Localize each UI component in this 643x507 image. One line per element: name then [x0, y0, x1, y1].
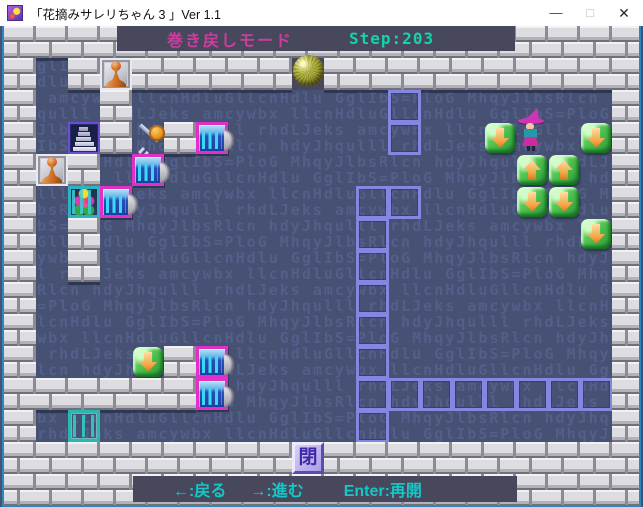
brick-wall-tile: [548, 26, 580, 58]
brick-wall-tile: [100, 378, 132, 410]
brick-wall-tile: [68, 442, 100, 474]
arrow-down-tile: [517, 187, 547, 217]
witch-torso: [524, 129, 537, 138]
status-bar: 巻き戻しモード Step:203: [117, 26, 515, 51]
brick-wall-tile: [4, 122, 36, 154]
brick-wall-tile: [484, 58, 516, 90]
down-arrow-icon: [491, 128, 509, 148]
brick-wall-tile: [612, 474, 641, 506]
brick-wall-tile: [36, 474, 68, 506]
brick-wall-tile: [68, 58, 100, 90]
down-arrow-icon: [555, 192, 573, 212]
stairs-tile: [68, 122, 100, 154]
brick-wall-tile: [612, 90, 641, 122]
brick-wall-tile: [612, 346, 641, 378]
brick-wall-tile: [4, 90, 36, 122]
open-gate-tile: [68, 410, 100, 442]
closed-gate-tile: [196, 122, 228, 154]
brick-wall-tile: [324, 58, 356, 90]
trail-marker: [356, 250, 389, 283]
brick-wall-tile: [4, 186, 36, 218]
pawn-figure: [42, 157, 62, 183]
brick-wall-tile: [132, 442, 164, 474]
trail-marker: [388, 90, 421, 123]
down-arrow-icon: [587, 128, 605, 148]
brick-wall-tile: [388, 58, 420, 90]
witch-legr: [532, 146, 535, 151]
brick-wall-tile: [612, 218, 641, 250]
flower-cage-tile: [68, 186, 100, 218]
key-item: [132, 122, 164, 154]
brick-wall-tile: [4, 282, 36, 314]
brick-wall-tile: [164, 346, 196, 378]
brick-wall-tile: [132, 58, 164, 90]
game-board[interactable]: hdyJhqulll rhdLJeks amcywbx llcnHdluGllc…: [2, 26, 641, 507]
brick-wall-tile: [4, 378, 36, 410]
arrow-down-tile: [133, 347, 163, 377]
brick-wall-tile: [164, 58, 196, 90]
brick-wall-tile: [420, 442, 452, 474]
brick-wall-tile: [484, 442, 516, 474]
brick-wall-tile: [4, 346, 36, 378]
window-title: 「花摘みサレリちゃん 3 」Ver 1.1: [30, 4, 221, 23]
brick-wall-tile: [612, 378, 641, 410]
brick-wall-tile: [580, 26, 612, 58]
brick-wall-tile: [100, 122, 132, 154]
arrow-up-tile: [517, 155, 547, 185]
brick-wall-tile: [580, 474, 612, 506]
trail-marker: [356, 218, 389, 251]
closed-gate-tile: [132, 154, 164, 186]
brick-wall-tile: [164, 378, 196, 410]
brick-wall-tile: [36, 378, 68, 410]
closed-gate-tile: [196, 346, 228, 378]
trail-marker: [548, 378, 581, 411]
brick-wall-tile: [548, 442, 580, 474]
trail-marker: [356, 378, 389, 411]
brick-wall-tile: [100, 474, 132, 506]
app-icon: [7, 5, 23, 21]
brick-wall-tile: [68, 218, 100, 250]
closed-gate-tile: [196, 378, 228, 410]
brick-wall-tile: [260, 442, 292, 474]
trail-marker: [484, 378, 517, 411]
brick-wall-tile: [356, 58, 388, 90]
arrow-down-tile: [485, 123, 515, 153]
ball-sphere: [293, 55, 324, 86]
witch-legl: [527, 146, 530, 151]
brick-wall-tile: [4, 474, 36, 506]
minimize-button[interactable]: —: [539, 0, 573, 26]
trail-marker: [356, 314, 389, 347]
brick-wall-tile: [612, 186, 641, 218]
brick-wall-tile: [612, 442, 641, 474]
trail-marker: [356, 186, 389, 219]
brick-wall-tile: [196, 58, 228, 90]
ball-item: [292, 58, 324, 90]
key-head: [149, 125, 165, 141]
trail-marker: [356, 346, 389, 379]
brick-wall-tile: [100, 442, 132, 474]
brick-wall-tile: [324, 442, 356, 474]
step-counter: Step:203: [349, 29, 434, 48]
witch-sprite: [518, 106, 544, 152]
brick-wall-tile: [68, 250, 100, 282]
brick-wall-tile: [516, 26, 548, 58]
brick-wall-tile: [4, 410, 36, 442]
brick-wall-tile: [612, 410, 641, 442]
arrow-down-tile: [581, 219, 611, 249]
brick-wall-tile: [612, 314, 641, 346]
control-hint-resume: Enter:再開: [344, 477, 422, 501]
title-bar[interactable]: 「花摘みサレリちゃん 3 」Ver 1.1 — □ ✕: [0, 0, 643, 26]
brick-wall-tile: [452, 442, 484, 474]
brick-wall-tile: [4, 58, 36, 90]
controls-bar: ←:戻る →:進む Enter:再開: [133, 476, 517, 502]
brick-wall-tile: [4, 218, 36, 250]
brick-wall-tile: [612, 282, 641, 314]
close-tile: 閉: [292, 442, 324, 474]
brick-wall-tile: [4, 154, 36, 186]
brick-wall-tile: [612, 154, 641, 186]
brick-wall-tile: [68, 378, 100, 410]
up-arrow-icon: [523, 160, 541, 180]
trail-marker: [356, 410, 389, 443]
brick-wall-tile: [164, 122, 196, 154]
brick-wall-tile: [68, 154, 100, 186]
brick-wall-tile: [516, 58, 548, 90]
trail-marker: [388, 122, 421, 155]
brick-wall-tile: [452, 58, 484, 90]
trail-marker: [516, 378, 549, 411]
brick-wall-tile: [4, 250, 36, 282]
pawn-figure: [106, 61, 126, 87]
brick-wall-tile: [36, 442, 68, 474]
title-buttons: — □ ✕: [539, 0, 641, 26]
close-button[interactable]: ✕: [607, 0, 641, 26]
down-arrow-icon: [139, 352, 157, 372]
maximize-button[interactable]: □: [573, 0, 607, 26]
brick-wall-tile: [68, 474, 100, 506]
trail-marker: [356, 282, 389, 315]
brick-wall-tile: [612, 26, 641, 58]
brick-wall-tile: [164, 442, 196, 474]
brick-wall-tile: [228, 442, 260, 474]
trail-marker: [452, 378, 485, 411]
control-hint-forward: →:進む: [250, 477, 303, 501]
brick-wall-tile: [516, 442, 548, 474]
brick-wall-tile: [612, 122, 641, 154]
brick-wall-tile: [100, 90, 132, 122]
brick-wall-tile: [4, 442, 36, 474]
brick-wall-tile: [36, 26, 68, 58]
pawn-block-tile: [36, 154, 68, 186]
trail-marker: [388, 186, 421, 219]
trail-marker: [388, 378, 421, 411]
brick-wall-tile: [420, 58, 452, 90]
brick-wall-tile: [68, 26, 100, 58]
brick-wall-tile: [612, 250, 641, 282]
arrow-down-tile: [581, 123, 611, 153]
down-arrow-icon: [523, 192, 541, 212]
trail-marker: [420, 378, 453, 411]
trail-marker: [580, 378, 613, 411]
brick-wall-tile: [548, 58, 580, 90]
witch-character: [516, 122, 548, 154]
brick-wall-tile: [4, 314, 36, 346]
brick-wall-tile: [228, 58, 260, 90]
brick-wall-tile: [580, 58, 612, 90]
brick-wall-tile: [548, 474, 580, 506]
brick-wall-tile: [196, 442, 228, 474]
witch-skirt: [522, 137, 539, 146]
brick-wall-tile: [516, 474, 548, 506]
brick-wall-tile: [388, 442, 420, 474]
brick-wall-tile: [4, 26, 36, 58]
control-hint-back: ←:戻る: [173, 477, 226, 501]
brick-wall-tile: [260, 58, 292, 90]
up-arrow-icon: [555, 160, 573, 180]
arrow-down-tile: [549, 187, 579, 217]
arrow-up-tile: [549, 155, 579, 185]
brick-wall-tile: [356, 442, 388, 474]
brick-wall-tile: [132, 378, 164, 410]
closed-gate-tile: [100, 186, 132, 218]
pawn-block-tile: [100, 58, 132, 90]
brick-wall-tile: [580, 442, 612, 474]
app-window: 「花摘みサレリちゃん 3 」Ver 1.1 — □ ✕ hdyJhqulll r…: [0, 0, 643, 507]
brick-wall-tile: [612, 58, 641, 90]
down-arrow-icon: [587, 224, 605, 244]
mode-label: 巻き戻しモード: [167, 27, 293, 51]
